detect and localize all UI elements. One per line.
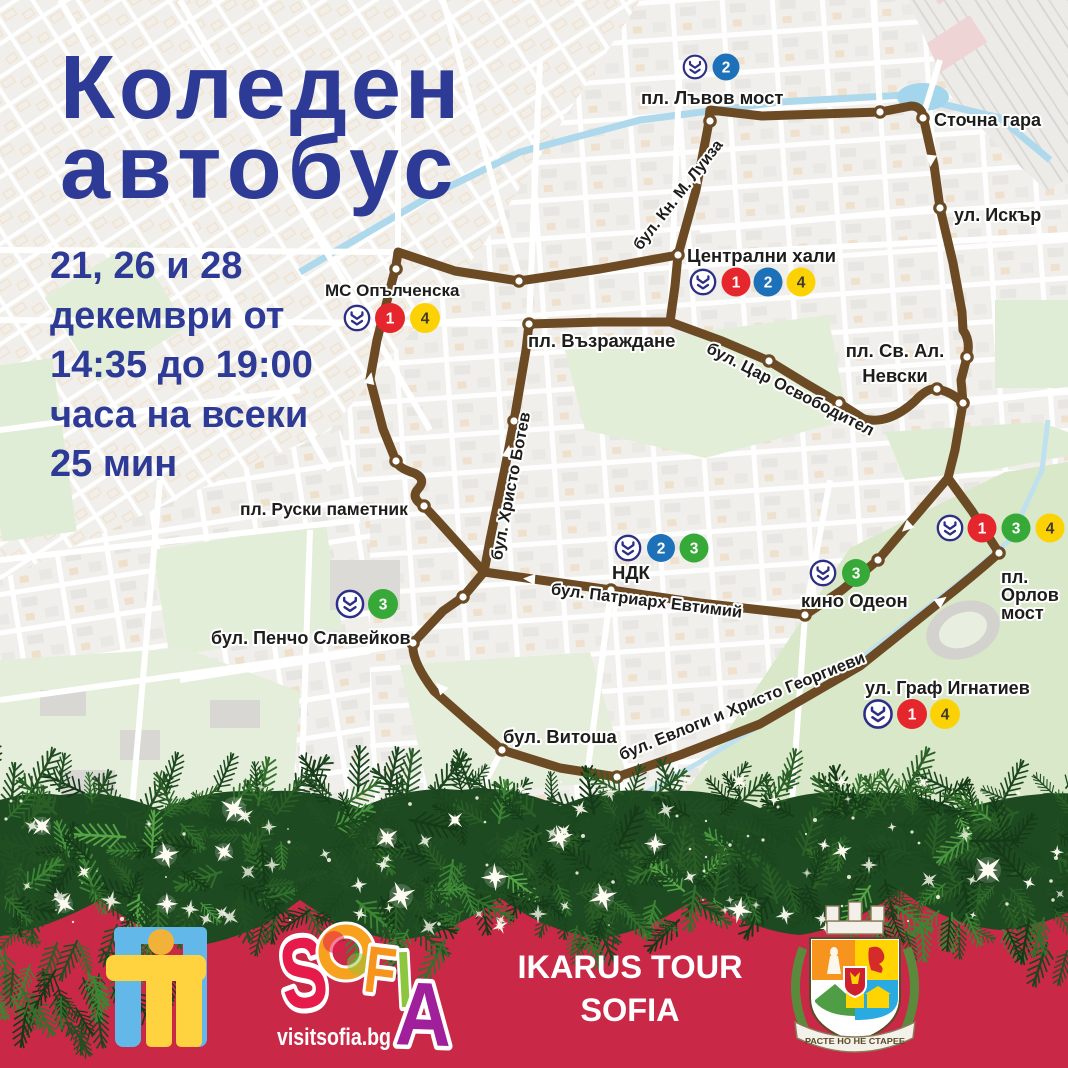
svg-text:visitsofia.bg: visitsofia.bg xyxy=(277,1024,391,1051)
svg-text:1: 1 xyxy=(732,275,741,292)
svg-text:декември от: декември от xyxy=(50,295,284,337)
svg-text:2: 2 xyxy=(657,541,666,558)
svg-text:НДК: НДК xyxy=(612,562,651,583)
svg-text:РАСТЕ НО НЕ СТАРЕЕ: РАСТЕ НО НЕ СТАРЕЕ xyxy=(805,1036,905,1046)
svg-text:4: 4 xyxy=(941,707,950,724)
svg-text:Сточна гара: Сточна гара xyxy=(934,110,1042,130)
svg-text:пл. Лъвов мост: пл. Лъвов мост xyxy=(641,87,783,108)
svg-text:кино Одеон: кино Одеон xyxy=(801,590,908,611)
svg-text:МС Опълченска: МС Опълченска xyxy=(325,281,460,300)
svg-text:ул. Искър: ул. Искър xyxy=(954,205,1041,225)
svg-text:25 мин: 25 мин xyxy=(50,443,177,485)
svg-text:пл. Възраждане: пл. Възраждане xyxy=(528,330,675,351)
svg-text:3: 3 xyxy=(379,597,388,614)
svg-text:2: 2 xyxy=(764,275,773,292)
svg-text:4: 4 xyxy=(1046,521,1055,538)
svg-text:4: 4 xyxy=(797,275,806,292)
svg-text:2: 2 xyxy=(722,60,731,77)
svg-text:SOFIA: SOFIA xyxy=(580,992,679,1028)
svg-text:3: 3 xyxy=(1012,521,1021,538)
svg-text:Орлов: Орлов xyxy=(1001,585,1059,605)
svg-text:бул. Витоша: бул. Витоша xyxy=(503,726,618,747)
svg-text:14:35 до 19:00: 14:35 до 19:00 xyxy=(50,344,313,386)
svg-text:Централни хали: Централни хали xyxy=(687,245,836,266)
svg-text:Невски: Невски xyxy=(862,365,927,386)
svg-text:3: 3 xyxy=(852,566,861,583)
svg-text:1: 1 xyxy=(908,707,917,724)
svg-text:пл.: пл. xyxy=(1001,567,1028,587)
svg-text:21, 26 и 28: 21, 26 и 28 xyxy=(50,245,242,287)
svg-text:A: A xyxy=(394,964,453,1066)
svg-text:4: 4 xyxy=(421,311,430,328)
svg-text:пл. Св. Ал.: пл. Св. Ал. xyxy=(846,340,944,361)
svg-text:бул. Пенчо Славейков: бул. Пенчо Славейков xyxy=(211,628,411,648)
svg-text:пл. Руски паметник: пл. Руски паметник xyxy=(240,499,408,519)
svg-text:автобус: автобус xyxy=(60,118,460,218)
svg-text:1: 1 xyxy=(386,311,395,328)
svg-text:мост: мост xyxy=(1001,603,1044,623)
svg-text:часа на всеки: часа на всеки xyxy=(50,394,308,436)
svg-text:IKARUS TOUR: IKARUS TOUR xyxy=(517,949,742,985)
svg-text:1: 1 xyxy=(978,521,987,538)
svg-text:3: 3 xyxy=(690,541,699,558)
svg-text:ул. Граф Игнатиев: ул. Граф Игнатиев xyxy=(865,678,1030,698)
